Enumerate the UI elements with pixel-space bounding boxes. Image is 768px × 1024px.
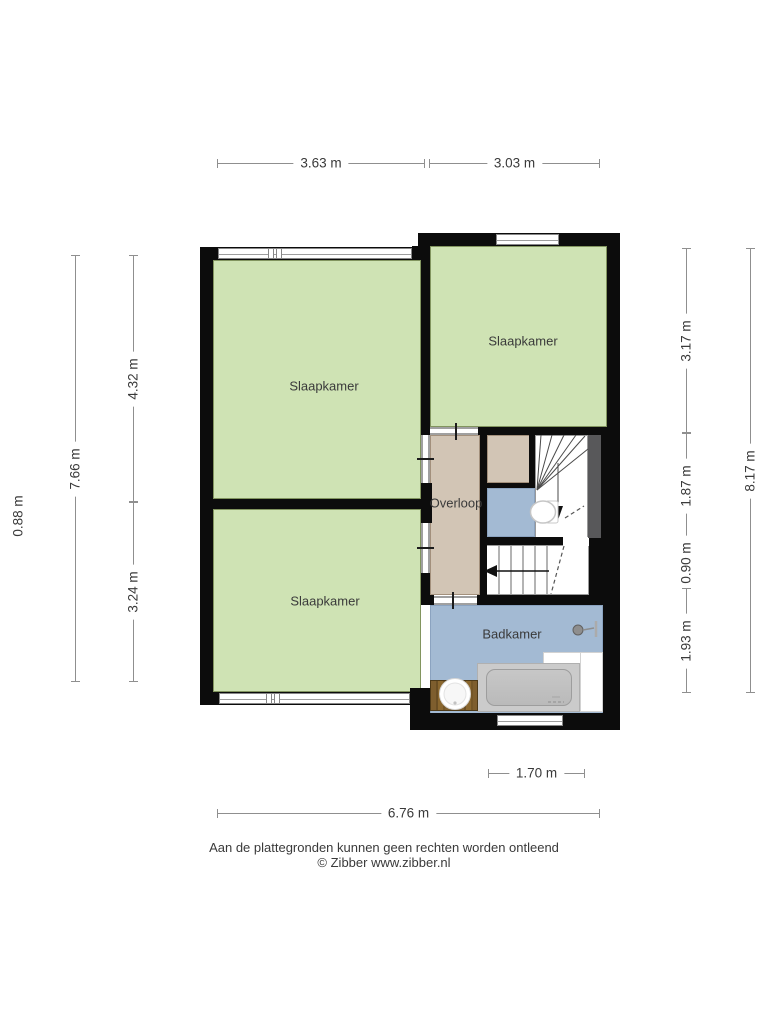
room-label-bathroom: Badkamer (482, 627, 541, 642)
dim-tick (217, 809, 218, 818)
dim-tick (488, 769, 489, 778)
wall-right-upper (607, 233, 620, 432)
dim-label: 1.87 m (679, 458, 694, 513)
dim-tick (682, 692, 691, 693)
dim-label: 0.88 m (11, 488, 26, 543)
disclaimer-text: Aan de plattegronden kunnen geen rechten… (0, 840, 768, 855)
window-top-right-bedroom (496, 234, 559, 245)
wall-cell-toilet-divider (480, 483, 535, 488)
dim-tick (682, 433, 691, 434)
dim-tick (429, 159, 430, 168)
dim-tick (584, 769, 585, 778)
dim-label: 0.90 m (679, 535, 694, 590)
wall-right-behind-duct (601, 432, 620, 538)
wall-bedroom-tr-bottom (478, 427, 607, 435)
sink-cabinet (430, 680, 478, 711)
window-divider-mark (276, 248, 282, 259)
dim-tick (682, 588, 691, 589)
room-label-bedroom-top-right: Slaapkamer (488, 334, 557, 349)
wall-interior-vertical-upper (421, 258, 430, 435)
room-landing-cell (487, 435, 533, 483)
dim-label: 3.03 m (487, 156, 542, 171)
room-label-landing: Overloop (430, 496, 483, 511)
dim-label: 3.63 m (293, 156, 348, 171)
dim-tick (71, 681, 80, 682)
bathtub (486, 669, 572, 706)
wall-cell-right (529, 435, 535, 483)
dim-tick (129, 681, 138, 682)
door-leaf-mark (417, 547, 434, 549)
window-bathroom (497, 715, 563, 726)
room-landing-corridor (430, 435, 480, 595)
dim-label: 8.17 m (743, 443, 758, 498)
wall-bathroom-top-left-seg (421, 595, 434, 605)
room-toilet (487, 488, 535, 537)
wall-left (200, 247, 213, 705)
dim-tick (599, 159, 600, 168)
dim-label: 3.17 m (679, 313, 694, 368)
shower-tray-right (580, 652, 603, 712)
room-label-bedroom-top-left: Slaapkamer (289, 379, 358, 394)
dim-tick (71, 255, 80, 256)
wall-right-lower (603, 605, 620, 730)
dim-tick (217, 159, 218, 168)
door-leaf-mark (417, 458, 434, 460)
window-divider-mark (274, 693, 280, 704)
door-leaf-mark (455, 423, 457, 440)
dim-tick (129, 502, 138, 503)
dim-tick (682, 248, 691, 249)
copyright-text: © Zibber www.zibber.nl (0, 855, 768, 870)
door-bedroom-top-right (430, 427, 478, 435)
dim-label: 6.76 m (381, 806, 436, 821)
duct-gray-strip (588, 432, 601, 538)
stairs-winder-area (535, 435, 588, 538)
window-divider-mark (268, 248, 274, 259)
dim-label: 4.32 m (126, 351, 141, 406)
wall-corridor-right (480, 435, 487, 605)
door-leaf-mark (452, 592, 454, 609)
door-bathroom (434, 596, 477, 605)
dim-tick (129, 255, 138, 256)
dim-label: 7.66 m (68, 441, 83, 496)
dim-label: 1.70 m (509, 766, 564, 781)
dim-tick (746, 692, 755, 693)
window-divider-mark (266, 693, 272, 704)
wall-bathroom-top-right-seg (477, 595, 607, 605)
wall-bedrooms-divider (213, 499, 421, 509)
dim-tick (746, 248, 755, 249)
window-top-left-bedroom (218, 248, 412, 259)
stairs-straight-area (487, 545, 589, 595)
room-label-bedroom-bottom-left: Slaapkamer (290, 594, 359, 609)
window-bottom-left-bedroom (219, 693, 410, 704)
dim-tick (424, 159, 425, 168)
floorplan-page: Slaapkamer Slaapkamer Slaapkamer Overloo… (0, 0, 768, 1024)
dim-label: 3.24 m (126, 564, 141, 619)
wall-toilet-bottom (480, 537, 563, 545)
stairs-junction-area (563, 537, 589, 546)
dim-tick (599, 809, 600, 818)
dim-label: 1.93 m (679, 613, 694, 668)
